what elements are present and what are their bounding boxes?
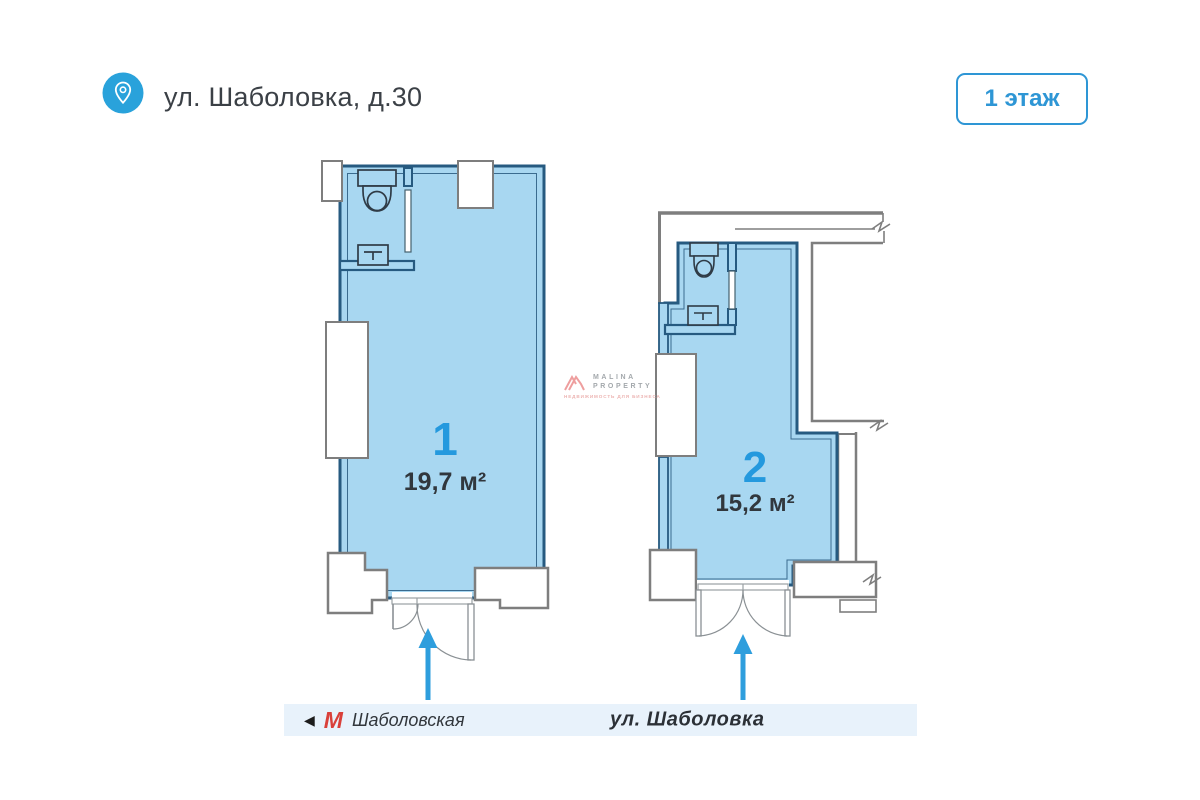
sink-icon [358,245,388,265]
wall-pier [475,568,548,608]
watermark-brand-line2: PROPERTY [593,383,652,390]
wall-niche [458,161,493,208]
metro-station-label: Шаболовская [352,710,465,731]
entrance-arrow-icon [419,628,438,700]
unit-2-number-label: 2 [725,446,785,490]
wall-pier [650,550,696,600]
door-swing-arc [417,604,471,660]
metro-group: ◀ М Шаболовская [304,704,465,736]
floor-plan-page: { "header": { "title": "ул. Шаболовка, д… [0,0,1200,800]
unit-2-entrance-door [696,580,790,636]
direction-left-icon: ◀ [304,713,315,727]
wall-pier [794,562,876,597]
unit-1-bathroom-door [405,190,411,252]
street-name-label: ул. Шаболовка [610,709,764,732]
window-wall [659,457,668,551]
entrance-arrow-icon [734,634,753,700]
unit-1-entrance-door [392,592,474,660]
wall-niche [326,322,368,458]
door-swing-arc [393,604,418,629]
door-swing-arc [699,590,743,636]
street-bar: ◀ М Шаболовская ул. Шаболовка [284,704,917,736]
watermark-brand-line1: MALINA [593,374,652,381]
unit-1-room-area [340,166,544,598]
sink-icon [688,306,718,325]
unit-2-bathroom-door [729,271,735,309]
brand-watermark: MALINA PROPERTY НЕДВИЖИМОСТЬ ДЛЯ БИЗНЕСА [564,373,656,399]
door-swing-arc [743,590,787,636]
unit-2-area-label: 15,2 м² [692,492,818,516]
floor-plan-drawing [0,0,1200,800]
malina-logo-icon [564,373,588,391]
wall-niche [656,354,696,456]
unit-1-area-label: 19,7 м² [382,470,508,495]
unit-1-number-label: 1 [415,416,475,462]
metro-logo-icon: М [324,709,343,732]
watermark-tagline: НЕДВИЖИМОСТЬ ДЛЯ БИЗНЕСА [564,394,656,399]
wall-stub [840,600,876,612]
wall-niche [322,161,342,201]
